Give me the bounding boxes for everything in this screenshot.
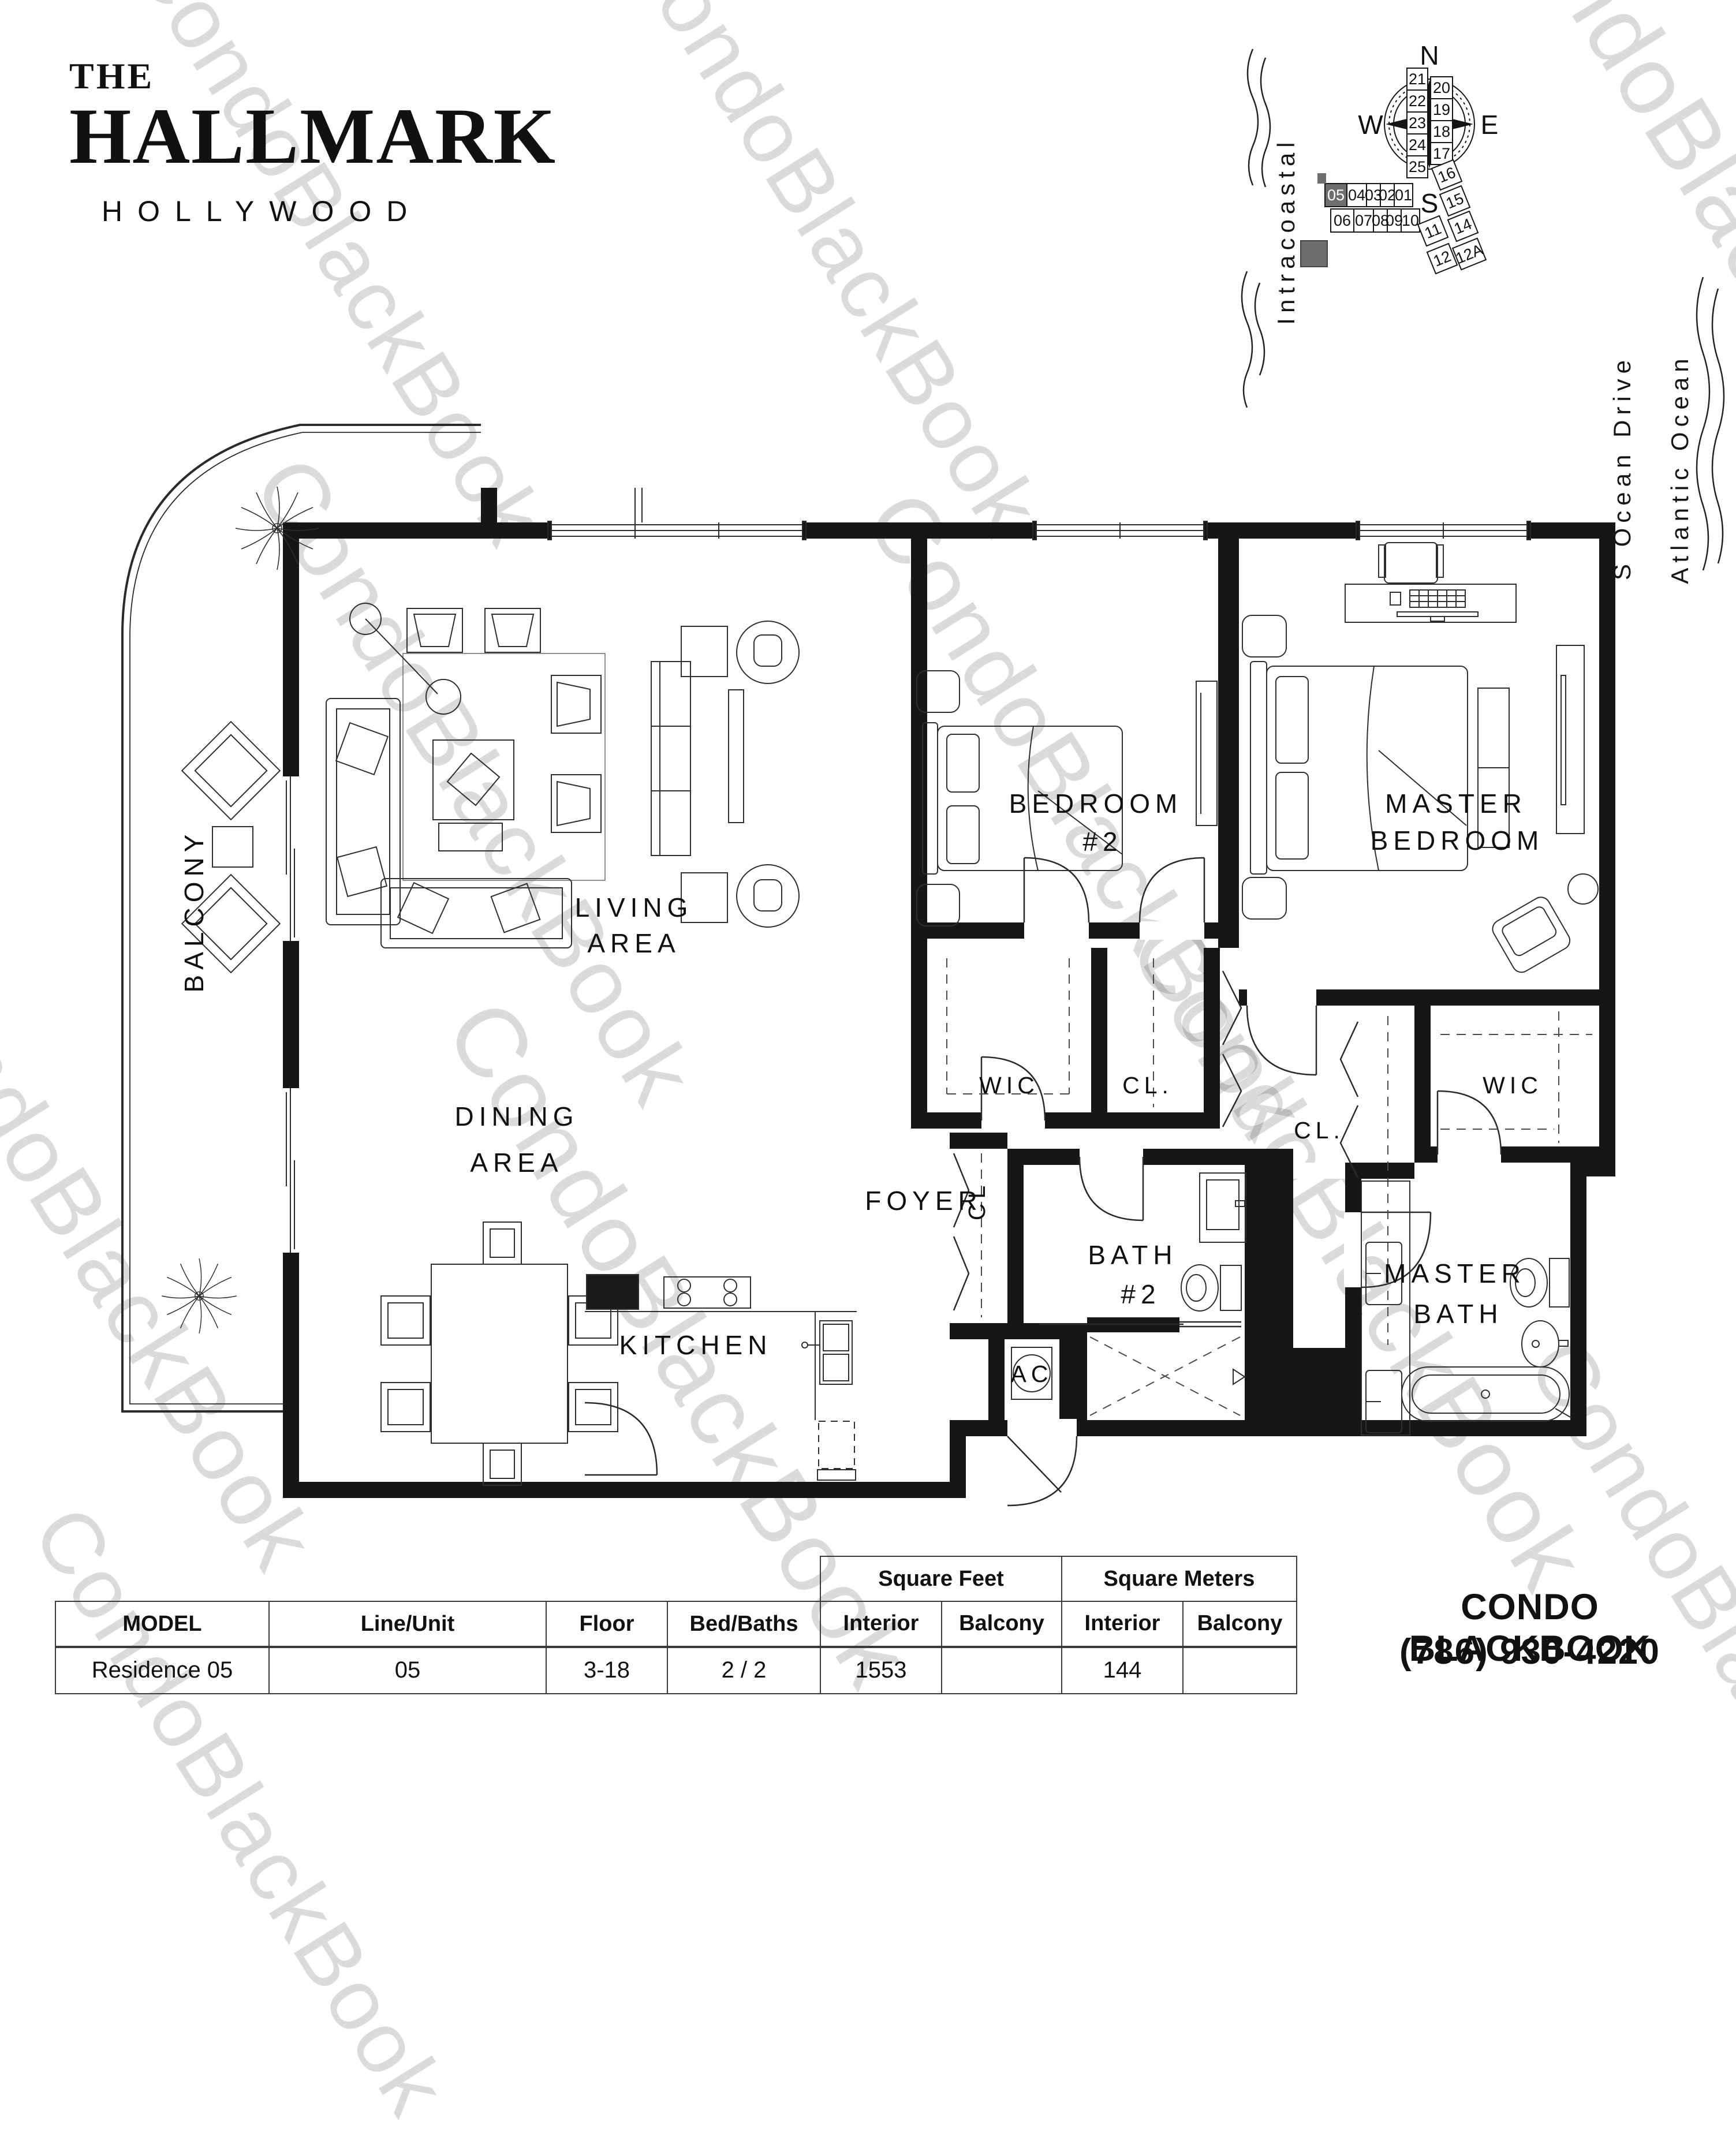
site-map-gray-notch <box>1317 173 1326 184</box>
unit-floor-plan: BALCONY LIVING AREA DINING AREA KITCHEN … <box>122 425 1615 1506</box>
title-hollywood: HOLLYWOOD <box>102 195 557 228</box>
label-masterbath-1: MASTER <box>1384 1258 1526 1288</box>
accent-chair-icon <box>551 775 601 832</box>
accent-chair-icon <box>485 608 540 652</box>
site-map-unit-numbers: 21 22 23 24 25 20 19 18 17 05 04 03 02 0… <box>1327 70 1485 270</box>
label-bath2-1: BATH <box>1088 1240 1177 1270</box>
tv-console-icon <box>1556 645 1584 834</box>
site-map-units <box>1301 68 1486 274</box>
site-map-gray-building <box>1301 241 1327 267</box>
svg-text:01: 01 <box>1395 186 1412 204</box>
swivel-chair-icon <box>737 621 799 683</box>
unit-05-label: 05 <box>1327 186 1345 204</box>
bathtub-icon <box>1402 1367 1571 1421</box>
walls <box>283 488 1615 1498</box>
refrigerator-icon <box>819 1421 854 1469</box>
svg-text:04: 04 <box>1348 186 1365 204</box>
label-bedroom2-1: BEDROOM <box>1009 789 1183 819</box>
desk-icon <box>1345 543 1516 622</box>
svg-text:02: 02 <box>1379 186 1396 204</box>
label-bedroom2-closet: CL. <box>1122 1072 1173 1099</box>
svg-text:06: 06 <box>1334 212 1351 229</box>
svg-text:19: 19 <box>1433 101 1450 118</box>
street-intracoastal: Intracoastal <box>1272 137 1300 324</box>
title-hallmark: HALLMARK <box>69 95 557 178</box>
nightstand-icon <box>1242 877 1286 919</box>
dining-chair-icon <box>381 1296 430 1345</box>
compass-e: E <box>1481 110 1499 140</box>
ottoman-icon <box>1568 874 1598 904</box>
room-labels: BALCONY LIVING AREA DINING AREA KITCHEN … <box>179 789 1544 1387</box>
street-atlantic-ocean: Atlantic Ocean <box>1666 353 1693 584</box>
svg-text:25: 25 <box>1409 158 1426 175</box>
svg-text:07: 07 <box>1355 212 1372 229</box>
svg-text:10: 10 <box>1402 212 1419 229</box>
label-balcony: BALCONY <box>179 830 209 993</box>
condo-blackbook-phone: (786) 930-4220 <box>1339 1631 1720 1672</box>
bidet-icon <box>1522 1321 1568 1367</box>
compass-n: N <box>1420 40 1439 70</box>
label-master-1: MASTER <box>1385 789 1527 819</box>
svg-text:20: 20 <box>1433 79 1450 96</box>
compass-s: S <box>1421 188 1439 218</box>
label-masterbath-2: BATH <box>1413 1299 1503 1329</box>
svg-text:12A: 12A <box>1453 241 1485 267</box>
label-bedroom2-wic: WIC <box>979 1072 1039 1099</box>
side-table-icon <box>681 626 727 677</box>
sofa-icon <box>326 698 400 925</box>
dining-chair-icon <box>483 1443 521 1485</box>
svg-text:22: 22 <box>1409 92 1426 110</box>
compass-rose-icon <box>1384 79 1474 169</box>
dining-chair-icon <box>483 1222 521 1264</box>
balcony-table-icon <box>212 827 253 867</box>
label-foyer-closet: CL <box>964 1181 990 1220</box>
armchair-icon <box>1489 894 1573 976</box>
shower-head-icon <box>1233 1369 1245 1384</box>
stove-icon <box>664 1277 751 1308</box>
label-hall-closet: CL. <box>1294 1117 1345 1144</box>
balcony-railing <box>122 425 481 1411</box>
kitchen-appliance-icon <box>587 1275 639 1309</box>
site-map: N S W E Intracoastal S Ocean Drive Atlan… <box>1242 40 1724 584</box>
label-bath2-2: #2 <box>1121 1279 1160 1309</box>
kitchen-fixtures <box>585 1275 857 1480</box>
svg-text:23: 23 <box>1409 114 1426 132</box>
plant-icon <box>162 1258 237 1333</box>
floorplan-sheet: { "watermark": { "text": "CondoBlackBook… <box>0 0 1736 1734</box>
media-console-icon <box>651 662 690 856</box>
dining-chair-icon <box>381 1383 430 1432</box>
swivel-chair-icon <box>737 865 799 927</box>
label-ac: AC <box>1011 1361 1053 1387</box>
tv-icon <box>729 690 744 823</box>
label-living-1: LIVING <box>575 892 693 922</box>
accent-chair-icon <box>551 675 601 733</box>
label-dining-1: DINING <box>455 1101 579 1131</box>
accent-chair-icon <box>407 608 462 652</box>
dresser-icon <box>1196 681 1217 825</box>
project-title-block: THE HALLMARK HOLLYWOOD <box>69 58 557 228</box>
kitchen-sink-icon <box>802 1321 852 1384</box>
master-vanity-icon <box>1361 1181 1410 1435</box>
svg-text:18: 18 <box>1433 123 1450 140</box>
nightstand-icon <box>1242 615 1286 657</box>
bench-icon <box>1478 688 1509 847</box>
svg-text:24: 24 <box>1409 136 1426 154</box>
compass-w: W <box>1358 110 1383 140</box>
bath2-vanity-icon <box>1200 1173 1246 1242</box>
label-kitchen: KITCHEN <box>619 1330 772 1360</box>
label-bedroom2-2: #2 <box>1082 827 1122 857</box>
label-master-2: BEDROOM <box>1371 825 1544 856</box>
svg-text:17: 17 <box>1433 145 1450 162</box>
label-master-wic: WIC <box>1483 1072 1543 1099</box>
dining-table-icon <box>431 1264 568 1443</box>
title-the: THE <box>69 58 557 95</box>
coffee-table-icon <box>433 740 514 851</box>
floor-plan-drawing: N S W E Intracoastal S Ocean Drive Atlan… <box>0 0 1736 1734</box>
svg-text:21: 21 <box>1409 70 1426 88</box>
label-dining-2: AREA <box>470 1148 563 1178</box>
toilet-icon <box>1181 1265 1241 1311</box>
sofa-icon <box>381 879 572 948</box>
balcony-lounge-chair-icon <box>182 722 280 820</box>
label-living-2: AREA <box>587 928 680 958</box>
floor-lamp-icon <box>350 603 461 714</box>
furniture <box>162 487 1598 1485</box>
svg-text:09: 09 <box>1386 212 1403 229</box>
